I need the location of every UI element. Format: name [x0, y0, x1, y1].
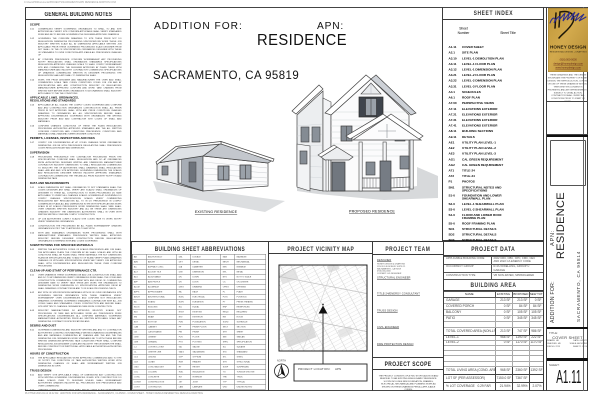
svg-text:NORTH: NORTH: [277, 359, 286, 363]
svg-text:HONEY DESIGN: HONEY DESIGN: [550, 45, 587, 50]
svg-text:(916) 000-0000: (916) 000-0000: [559, 59, 577, 62]
svg-text:design@honeydesign.com: design@honeydesign.com: [553, 62, 583, 65]
svg-text:PROPOSED RESIDENCE: PROPOSED RESIDENCE: [349, 210, 395, 214]
svg-text:www.honeydesign.com: www.honeydesign.com: [555, 66, 581, 69]
svg-text:APN: APN: [335, 367, 341, 371]
svg-text:RESIDENTIAL DESIGN + DRAFTING: RESIDENTIAL DESIGN + DRAFTING: [549, 51, 586, 54]
svg-text:PROJECT LOCATION:: PROJECT LOCATION:: [298, 367, 330, 371]
svg-text:EXISTING RESIDENCE: EXISTING RESIDENCE: [195, 210, 238, 214]
